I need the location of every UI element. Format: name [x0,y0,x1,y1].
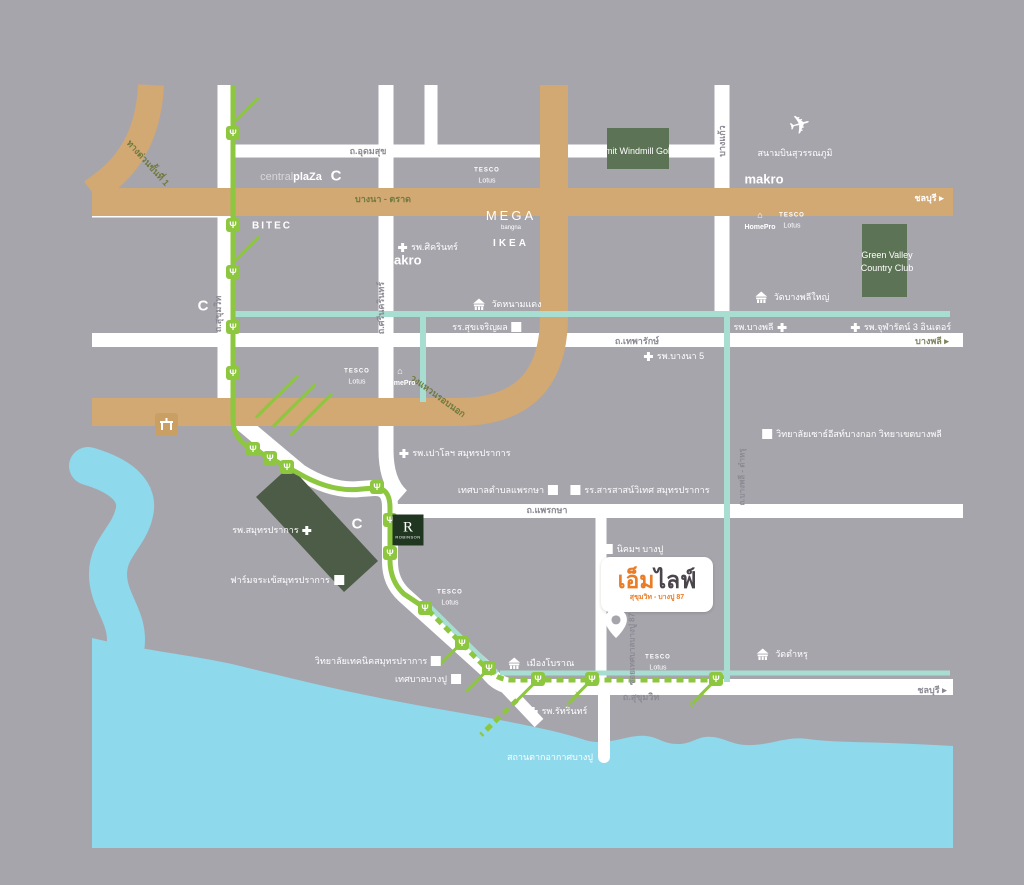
road-label-theparak: ถ.เทพารักษ์ [615,334,659,348]
hospital-label: รพ.จุฬารัตน์ 3 อินเตอร์ [864,320,951,334]
map-canvas: Ψ Ψ Ψ Ψ Ψ Ψ Ψ Ψ Ψ Ψ Ψ Ψ Ψ Ψ Ψ Ψ Ψ ทางด่ว… [0,0,1024,885]
place-label: ฟาร์มจระเข้สมุทรปราการ [230,573,330,587]
transit-station-icon: Ψ [226,126,240,140]
samutprakan-hospital: รพ.สมุทรปราการ [232,523,311,537]
place-square-icon [548,485,558,495]
highway-expressway1 [92,85,151,192]
makro-logo: makro [744,172,783,187]
transit-station-icon: Ψ [263,451,277,465]
transit-station-icon: Ψ [482,661,496,675]
temple-icon [753,291,770,304]
road-label-chonburi-bottom: ชลบุรี ▸ [917,683,946,697]
paolo-hospital: รพ.เปาโลฯ สมุทรปราการ [399,446,510,460]
mega-text: MEGA [486,209,536,223]
lotus-text: Lotus [478,178,495,185]
bangplee-hospital: รพ.บางพลี [734,320,787,334]
transit-station-icon: Ψ [370,480,384,494]
transit-station-icon: Ψ [418,601,432,615]
centralplaza-logo: centralplaZa [260,171,322,183]
central-text: central [260,171,293,183]
hospital-label: รพ.เปาโลฯ สมุทรปราการ [412,446,510,460]
southeast-bangkok-college: วิทยาลัยเซาธ์อีสท์บางกอก วิทยาเขตบางพลี [762,427,942,441]
airport-label: สนามบินสุวรรณภูมิ [758,146,833,160]
lotus-text: Lotus [783,223,800,230]
road-label-bangkaeo: บางแก้ว [715,125,729,156]
homepro-logo: ⌂HomePro [744,211,775,231]
homepro-logo: ⌂HomePro [384,367,415,387]
technical-college: วิทยาลัยเทคนิคสมุทรปราการ [315,654,441,668]
rattarin-hospital: รพ.รัทรินทร์ [529,704,588,718]
mega-ikea-logo: MEGA bangna IKEA [486,209,536,249]
place-square-icon [603,544,613,554]
hospital-cross-icon [399,449,408,458]
school-label: รร.สารสาสน์วิเทศ สมุทรปราการ [584,483,709,497]
place-square-icon [570,485,580,495]
mega-sub-text: bangna [501,225,521,232]
school-label: วิทยาลัยเซาธ์อีสท์บางกอก วิทยาเขตบางพลี [776,427,942,441]
hospital-cross-icon [398,243,407,252]
crocodile-farm: ฟาร์มจระเข้สมุทรปราการ [230,573,344,587]
project-subtitle: สุขุมวิท - บางปู 87 [630,594,684,601]
tesco-lotus-logo: TESCOLotus [474,168,500,185]
green-valley-label-2: Country Club [861,263,914,273]
homepro-text: HomePro [384,380,415,387]
bangpu-resort-label: สถานตากอากาศบางปู [507,750,593,764]
hospital-cross-icon [529,707,538,716]
transit-station-icon: Ψ [585,672,599,686]
robinson-logo: R ROBINSON [393,515,424,546]
transit-station-icon: Ψ [455,636,469,650]
road-label-soi87: ซอยเทศบาลบางปู 87 [626,613,639,685]
road-label-sukhumvit-upper: ถ.สุขุมวิท [211,296,225,333]
hospital-label: รพ.บางพลี [734,320,774,334]
hospital-label: รพ.สมุทรปราการ [232,523,298,537]
road-label-bangplee: บางพลี ▸ [915,334,949,348]
bigc-logo: C [352,516,363,533]
road-label-srinakarin: ถ.ศรีนครินทร์ [374,282,388,334]
place-label: เทศบาลบางปู [395,672,447,686]
transit-station-icon: Ψ [383,546,397,560]
green-valley-area [862,224,907,297]
green-valley-label-1: Green Valley [861,250,912,260]
wat-bangplee-yai: วัดบางพลีใหญ่ [753,290,830,304]
road-label-chonburi-top: ชลบุรี ▸ [914,191,943,205]
school-label: รร.สุขเจริญผล [452,320,507,334]
school-label: วิทยาลัยเทคนิคสมุทรปราการ [315,654,427,668]
tesco-lotus-logo: TESCOLotus [437,590,463,607]
road-label-bangplee-tamru: ถ.บางพลี - ตำหรุ [736,448,749,505]
tesco-text: TESCO [779,213,805,219]
tesco-text: TESCO [474,168,500,174]
tesco-lotus-logo: TESCOLotus [344,369,370,386]
transit-station-icon: Ψ [226,218,240,232]
temple-icon [754,648,771,661]
tesco-text: TESCO [437,590,463,596]
project-name-prefix: เอ็ม [618,567,655,593]
hospital-label: รพ.บางนา 5 [657,349,704,363]
tesco-text: TESCO [344,369,370,375]
road-label-sukhumvit-lower: ถ.สุขุมวิท [623,690,660,704]
nikhom-bangpu: นิคมฯ บางปู [603,542,664,556]
house-icon: ⌂ [757,211,762,220]
robinson-r-text: R [403,521,413,536]
transit-station-icon: Ψ [246,442,260,456]
bangpu-city-hall: เทศบาลบางปู [395,672,461,686]
place-square-icon [431,656,441,666]
temple-icon [470,298,487,311]
tesco-lotus-logo: TESCOLotus [779,213,805,230]
bigc-logo: C [331,168,342,185]
project-name: เอ็มไลฟ์ [618,568,697,592]
place-label: นิคมฯ บางปู [617,542,664,556]
road-label-udomsuk: ถ.อุดมสุข [350,144,387,158]
wat-namdaeng: วัดหนามแดง [470,297,541,311]
place-square-icon [334,575,344,585]
location-pin-icon [605,609,627,643]
transit-station-icon: Ψ [226,366,240,380]
homepro-text: HomePro [744,224,775,231]
temple-icon [506,657,523,670]
road-label-bangna-trat: บางนา - ตราด [355,192,411,206]
bigc-logo: C [198,298,209,315]
toll-gate-icon [155,413,178,436]
lotus-text: Lotus [441,600,458,607]
lotus-text: Lotus [649,665,666,672]
place-label: เมืองโบราณ [527,656,575,670]
wat-tamru: วัดตำหรุ [754,647,808,661]
temple-label: วัดตำหรุ [775,647,808,661]
sukjaroenpol-school: รร.สุขเจริญผล [452,320,521,334]
ikea-text: IKEA [493,238,529,249]
place-square-icon [512,322,522,332]
highway-outer-ring [92,85,554,412]
hospital-cross-icon [777,323,786,332]
chularat-hospital: รพ.จุฬารัตน์ 3 อินเตอร์ [851,320,951,334]
muang-boran: เมืองโบราณ [506,656,575,670]
makro-logo: makro [382,253,421,268]
robinson-text: ROBINSON [395,536,420,540]
place-label: เทศบาลตำบลแพรกษา [458,483,544,497]
road-label-praksa: ถ.แพรกษา [527,503,568,517]
hospital-cross-icon [303,526,312,535]
house-icon: ⌂ [397,367,402,376]
transit-station-icon: Ψ [280,460,294,474]
temple-label: วัดบางพลีใหญ่ [774,290,830,304]
place-square-icon [762,429,772,439]
plaza-text: plaZa [293,171,322,183]
transit-station-icon: Ψ [709,672,723,686]
tesco-lotus-logo: TESCOLotus [645,655,671,672]
hospital-label: รพ.ศิครินทร์ [411,240,458,254]
place-square-icon [451,674,461,684]
sikarin-hospital: รพ.ศิครินทร์ [398,240,458,254]
project-name-suffix: ไลฟ์ [654,567,696,593]
project-badge: เอ็มไลฟ์ สุขุมวิท - บางปู 87 [601,557,713,612]
praksa-city-hall: เทศบาลตำบลแพรกษา [458,483,558,497]
summit-golf-label: Summit Windmill Golf Club [586,146,693,156]
bitec-logo: BITEC [252,221,292,232]
lotus-text: Lotus [348,379,365,386]
temple-label: วัดหนามแดง [491,297,541,311]
hospital-cross-icon [644,352,653,361]
bangna5-hospital: รพ.บางนา 5 [644,349,704,363]
sarasas-school: รร.สารสาสน์วิเทศ สมุทรปราการ [570,483,709,497]
transit-station-icon: Ψ [531,672,545,686]
transit-station-icon: Ψ [226,265,240,279]
transit-station-icon: Ψ [226,320,240,334]
hospital-cross-icon [851,323,860,332]
tesco-text: TESCO [645,655,671,661]
